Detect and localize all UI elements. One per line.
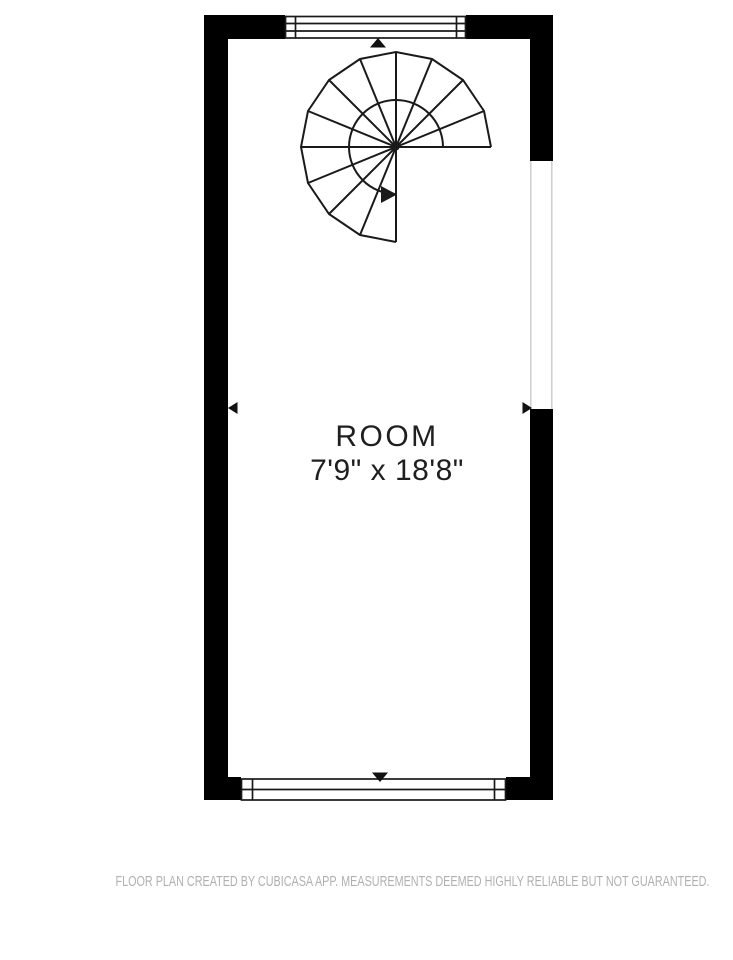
- dimension-markers: [228, 38, 532, 782]
- left-arrow-icon: [228, 402, 238, 414]
- right-wall-opening: [531, 161, 552, 409]
- room-name: ROOM: [229, 420, 545, 454]
- footer-disclaimer: FLOOR PLAN CREATED BY CUBICASA APP. MEAS…: [0, 872, 733, 892]
- wall-bottom-left-segment: [204, 777, 241, 800]
- wall-bottom-right-segment: [506, 777, 553, 800]
- room-label: ROOM 7'9" x 18'8": [229, 420, 545, 488]
- wall-left: [204, 15, 228, 800]
- footer-disclaimer-text: FLOOR PLAN CREATED BY CUBICASA APP. MEAS…: [115, 872, 709, 892]
- bottom-wall-window: [242, 779, 506, 800]
- staircase-center-post: [393, 144, 400, 151]
- walls: [204, 15, 553, 800]
- spiral-staircase: [301, 52, 491, 242]
- wall-right-upper: [530, 15, 553, 161]
- staircase-direction-arrow-icon: [381, 186, 397, 203]
- room-dimensions: 7'9" x 18'8": [229, 454, 545, 488]
- floor-plan-page: ROOM 7'9" x 18'8" FLOOR PLAN CREATED BY …: [0, 0, 733, 960]
- up-arrow-icon: [370, 38, 386, 48]
- window-frame: [286, 17, 466, 39]
- top-wall-window: [286, 17, 466, 39]
